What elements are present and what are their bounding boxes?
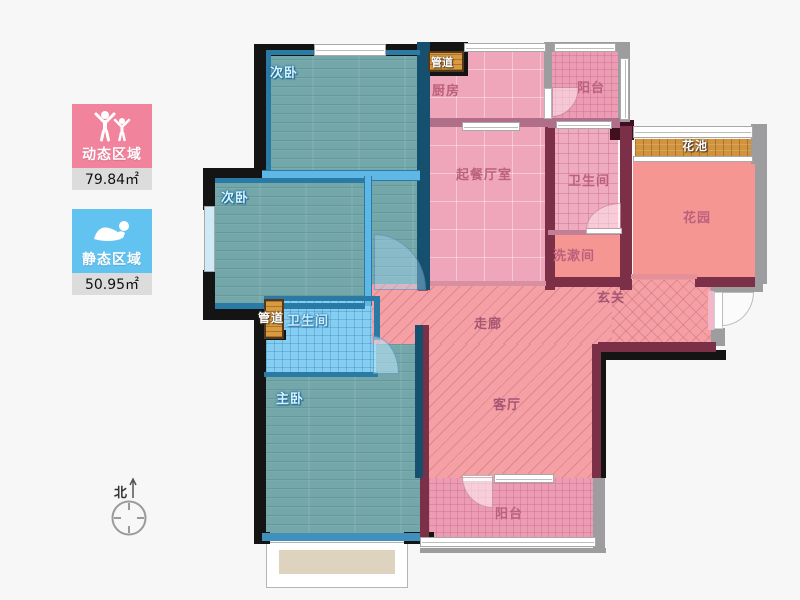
sliding-door-window bbox=[494, 474, 554, 483]
wall-segment bbox=[264, 372, 378, 377]
wall-segment bbox=[592, 344, 601, 478]
crawling-person-icon bbox=[72, 215, 152, 245]
wall-segment bbox=[374, 296, 380, 340]
room-label-duct-upper: 管道 bbox=[431, 54, 453, 70]
wall-segment bbox=[428, 281, 546, 286]
wall-segment bbox=[254, 44, 266, 180]
wall-segment bbox=[598, 342, 716, 352]
window bbox=[204, 206, 215, 272]
wall-segment bbox=[544, 50, 552, 90]
wall-segment bbox=[695, 277, 755, 287]
room-label-garden: 花园 bbox=[683, 207, 711, 226]
window bbox=[420, 537, 596, 547]
cheering-people-icon bbox=[72, 110, 152, 144]
room-label-master-bathroom: 卫生间 bbox=[287, 310, 329, 329]
room-label-bedroom-top: 次卧 bbox=[270, 62, 298, 81]
room-label-master-bedroom: 主卧 bbox=[276, 388, 304, 407]
legend-static-value: 50.95㎡ bbox=[72, 273, 152, 295]
room-label-hallway: 走廊 bbox=[474, 313, 502, 332]
wall-segment bbox=[545, 126, 555, 234]
room-label-bathroom-upper: 卫生间 bbox=[568, 170, 610, 189]
wall-segment bbox=[420, 476, 429, 542]
wall-segment bbox=[422, 325, 429, 478]
wall-segment bbox=[215, 303, 365, 309]
room-label-duct-lower: 管道 bbox=[258, 309, 284, 326]
wall-segment bbox=[631, 274, 697, 279]
room-label-living-room: 客厅 bbox=[493, 394, 521, 413]
window bbox=[464, 43, 546, 52]
window bbox=[633, 156, 753, 162]
legend-dynamic-card: 动态区域 bbox=[72, 104, 152, 168]
window bbox=[554, 43, 616, 52]
wall-segment bbox=[262, 533, 420, 541]
wall-segment bbox=[415, 325, 423, 478]
floorplan-page: 动态区域 79.84㎡ 静态区域 50.95㎡ 北 bbox=[0, 0, 800, 600]
legend-dynamic-label: 动态区域 bbox=[82, 144, 142, 164]
legend-static-label: 静态区域 bbox=[82, 249, 142, 269]
door-leaf bbox=[544, 88, 552, 119]
legend-dynamic-value: 79.84㎡ bbox=[72, 168, 152, 190]
room-label-balcony-bottom: 阳台 bbox=[495, 503, 523, 522]
wall-segment bbox=[417, 42, 430, 290]
room-label-balcony-top: 阳台 bbox=[577, 77, 605, 96]
wall-segment bbox=[620, 126, 632, 290]
room-label-bedroom-left: 次卧 bbox=[221, 187, 249, 206]
sliding-door-window bbox=[462, 122, 520, 131]
compass-icon bbox=[102, 476, 158, 544]
wall-segment bbox=[755, 158, 767, 284]
room-label-kitchen: 厨房 bbox=[432, 80, 460, 99]
wall-segment bbox=[420, 548, 606, 553]
wall-segment bbox=[254, 316, 266, 544]
room-label-flower-bed: 花池 bbox=[682, 137, 708, 154]
wall-segment bbox=[203, 168, 215, 210]
room-label-foyer: 玄关 bbox=[597, 287, 625, 306]
room-dining-floor bbox=[428, 126, 546, 286]
wall-segment bbox=[215, 178, 365, 183]
room-label-living-dining: 起餐厅室 bbox=[456, 164, 512, 183]
entry-door-swing-arc bbox=[722, 292, 754, 326]
window bbox=[314, 44, 386, 56]
wall-segment bbox=[364, 176, 372, 306]
room-label-washroom: 洗漱间 bbox=[553, 245, 595, 264]
wall-segment bbox=[545, 277, 627, 287]
bay-window-sill bbox=[276, 547, 398, 577]
window bbox=[620, 58, 629, 120]
legend-static-card: 静态区域 bbox=[72, 209, 152, 273]
sliding-door-window bbox=[556, 121, 612, 129]
